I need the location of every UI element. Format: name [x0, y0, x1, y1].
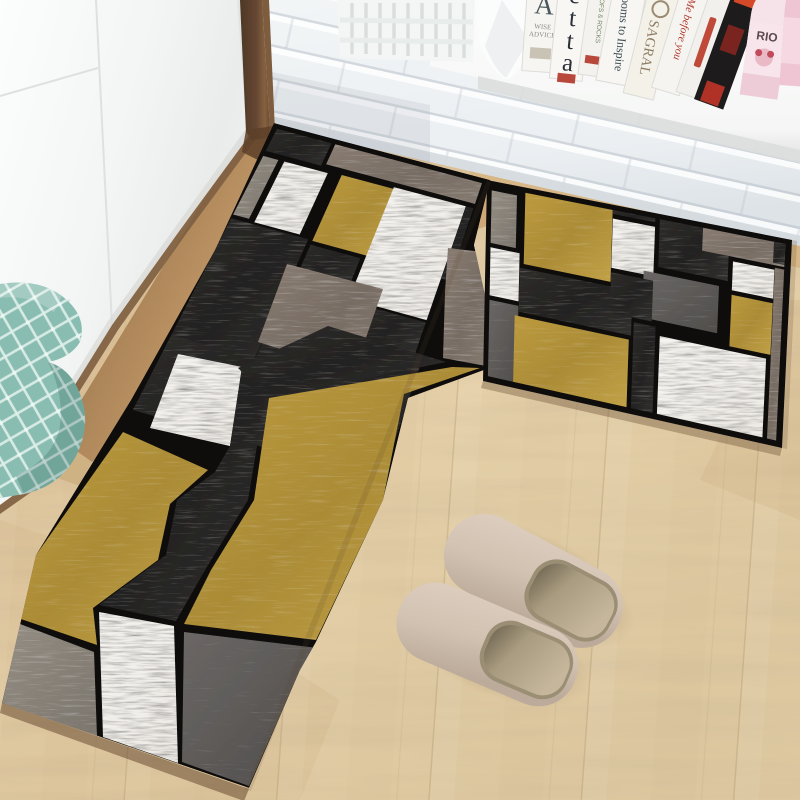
svg-text:A: A [534, 0, 556, 21]
svg-text:RIO: RIO [755, 28, 778, 45]
